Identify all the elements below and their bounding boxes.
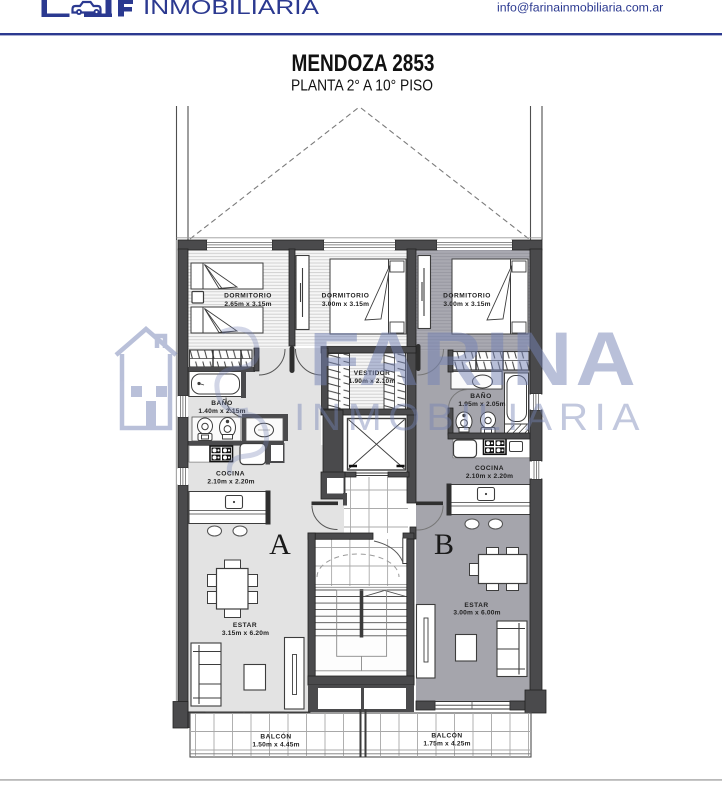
svg-text:DORMITORIO: DORMITORIO <box>443 293 491 300</box>
svg-text:PLANTA 2° A 10° PISO: PLANTA 2° A 10° PISO <box>291 78 433 95</box>
svg-text:BALCÓN: BALCÓN <box>260 732 291 741</box>
svg-text:ESTAR: ESTAR <box>233 622 257 629</box>
svg-text:2.10m x 2.20m: 2.10m x 2.20m <box>466 473 513 480</box>
svg-text:FARINA: FARINA <box>309 317 639 402</box>
svg-text:DORMITORIO: DORMITORIO <box>322 293 370 300</box>
svg-text:INMOBILIARIA: INMOBILIARIA <box>294 397 646 439</box>
svg-text:A: A <box>269 528 291 561</box>
svg-text:MENDOZA 2853: MENDOZA 2853 <box>292 50 435 77</box>
svg-text:3.00m x 3.15m: 3.00m x 3.15m <box>443 301 490 308</box>
svg-text:1.75m x 4.25m: 1.75m x 4.25m <box>423 741 470 748</box>
svg-text:2.65m x 3.15m: 2.65m x 3.15m <box>224 301 271 308</box>
svg-text:3.00m x 6.00m: 3.00m x 6.00m <box>453 610 500 617</box>
svg-text:DORMITORIO: DORMITORIO <box>224 293 272 300</box>
svg-text:BALCÓN: BALCÓN <box>431 731 462 740</box>
svg-text:COCINA: COCINA <box>475 465 504 472</box>
svg-text:INMOBILIARIA: INMOBILIARIA <box>143 0 319 19</box>
svg-text:3.00m x 3.15m: 3.00m x 3.15m <box>322 301 369 308</box>
svg-text:2.10m x 2.20m: 2.10m x 2.20m <box>207 479 254 486</box>
svg-text:1.50m x 4.45m: 1.50m x 4.45m <box>252 742 299 749</box>
svg-text:ESTAR: ESTAR <box>464 602 488 609</box>
svg-text:info@farinainmobiliaria.com.ar: info@farinainmobiliaria.com.ar <box>497 1 663 15</box>
svg-text:B: B <box>434 528 454 561</box>
svg-text:3.15m x 6.20m: 3.15m x 6.20m <box>222 630 269 637</box>
